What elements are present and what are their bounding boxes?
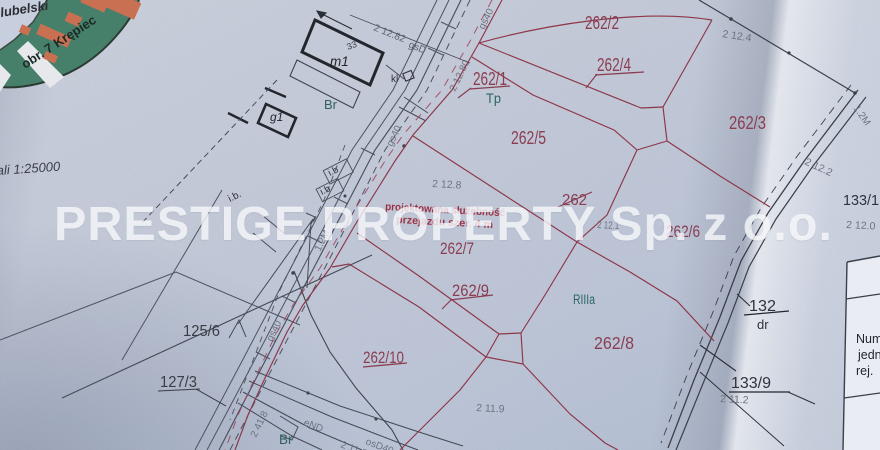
svg-text:2 11.9: 2 11.9: [476, 402, 505, 415]
svg-text:2 11.2: 2 11.2: [720, 393, 749, 406]
svg-text:RIIIa: RIIIa: [573, 292, 595, 307]
svg-text:2 12.8: 2 12.8: [432, 178, 462, 192]
svg-text:262/4: 262/4: [597, 55, 631, 75]
svg-text:262/2: 262/2: [585, 12, 619, 33]
svg-text:Tp: Tp: [486, 90, 501, 106]
svg-text:262/8: 262/8: [594, 333, 634, 353]
svg-text:rej.: rej.: [856, 364, 873, 378]
svg-text:262/5: 262/5: [511, 128, 546, 148]
svg-text:125/6: 125/6: [183, 323, 220, 340]
svg-text:262/3: 262/3: [729, 113, 766, 133]
svg-text:jedn: jedn: [857, 348, 880, 362]
svg-text:g1: g1: [270, 110, 283, 124]
svg-text:Br: Br: [279, 432, 293, 447]
svg-text:Br: Br: [324, 97, 338, 112]
svg-text:m1: m1: [330, 54, 349, 69]
svg-text:kl: kl: [391, 74, 398, 85]
svg-text:dr: dr: [757, 317, 769, 332]
svg-text:133/9: 133/9: [731, 375, 771, 392]
svg-text:Num: Num: [856, 332, 880, 346]
svg-text:127/3: 127/3: [160, 374, 197, 391]
